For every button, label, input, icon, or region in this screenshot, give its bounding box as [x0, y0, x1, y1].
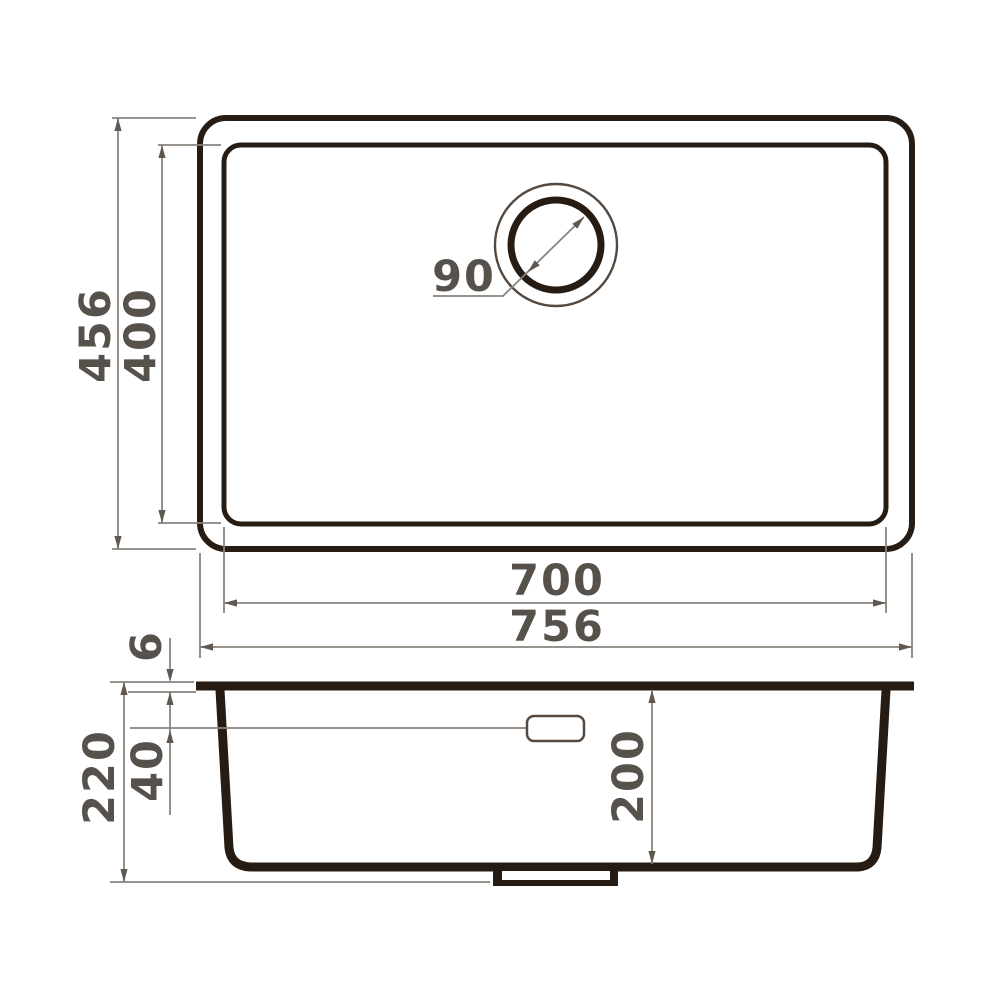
- side-view-dimensions: 6 40 220 200: [75, 630, 656, 882]
- arrowhead-down: [120, 869, 127, 882]
- inner-width-label: 700: [509, 556, 605, 606]
- drain-fitting-slot: [502, 871, 610, 880]
- arrowhead-up: [166, 692, 173, 705]
- drain-diameter-label: 90: [432, 252, 496, 302]
- arrowhead-down: [648, 851, 655, 864]
- inner-depth-label: 400: [116, 287, 166, 383]
- arrowhead-up: [648, 690, 655, 703]
- arrowhead-left: [224, 599, 237, 606]
- bowl-depth-label: 200: [604, 728, 654, 824]
- top-view: 90: [200, 118, 912, 549]
- arrowhead-right: [899, 643, 912, 650]
- arrowhead-down: [158, 510, 165, 523]
- outer-depth-label: 456: [71, 287, 121, 383]
- arrowhead-left: [200, 643, 213, 650]
- arrowhead-up: [158, 145, 165, 158]
- arrowhead-up: [120, 682, 127, 695]
- sink-technical-drawing: 90 456 400 700 756: [0, 0, 1000, 1000]
- overflow-offset-label: 40: [123, 738, 173, 802]
- sink-outer-outline: [200, 118, 912, 549]
- arrowhead-down: [114, 536, 121, 549]
- arrowhead-up: [114, 118, 121, 131]
- technical-drawing-page: 90 456 400 700 756: [0, 0, 1000, 1000]
- side-view: [130, 686, 914, 886]
- arrowhead-down: [166, 669, 173, 682]
- rim-thickness-label: 6: [122, 630, 172, 662]
- arrowhead-right: [873, 599, 886, 606]
- overflow-outline: [527, 716, 584, 741]
- total-height-label: 220: [75, 729, 125, 825]
- outer-width-label: 756: [509, 602, 605, 652]
